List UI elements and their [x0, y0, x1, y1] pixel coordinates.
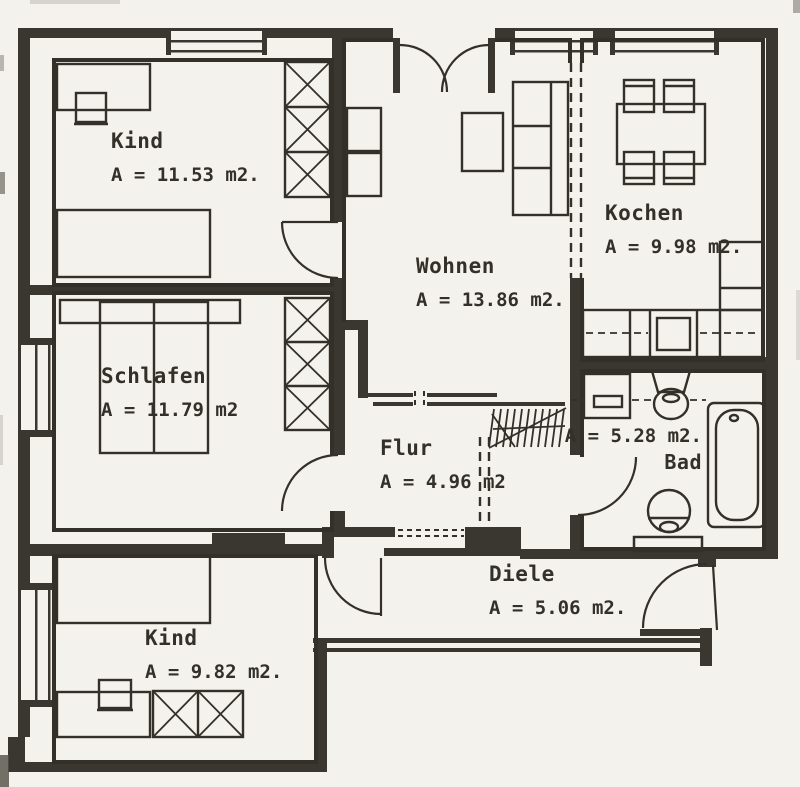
kind2-wardrobe: [153, 691, 243, 737]
floor-plan-page: Kind A = 11.53 m2. Wohnen A = 13.86 m2. …: [0, 0, 800, 787]
room-label-wohnen: Wohnen A = 13.86 m2.: [416, 256, 565, 310]
wohnen-sofa: [513, 82, 568, 215]
room-name: Kochen: [605, 203, 742, 224]
room-label-flur: Flur A = 4.96 m2: [380, 438, 506, 492]
door-kind1: [282, 222, 338, 278]
room-area: A = 9.82 m2.: [145, 663, 282, 682]
door-kind2-diele: [325, 558, 381, 616]
room-name: Kind: [111, 131, 260, 152]
room-outline-kochen: [582, 40, 763, 360]
room-name: Kind: [145, 628, 282, 649]
room-label-diele: Diele A = 5.06 m2.: [489, 564, 626, 618]
entrance-door: [643, 564, 717, 630]
room-name: Bad: [552, 452, 702, 472]
window-schlafen: [18, 338, 52, 437]
kind2-bed: [57, 556, 210, 623]
room-area: A = 11.53 m2.: [111, 166, 260, 185]
window-kind2: [18, 583, 52, 707]
balcony-door-jamb: [488, 38, 495, 93]
room-outline-wohnen-left: [344, 40, 393, 322]
room-name: Flur: [380, 438, 506, 459]
room-area: A = 5.28 m2.: [552, 427, 702, 446]
room-area: A = 4.96 m2: [380, 473, 506, 492]
balcony-door-jamb: [393, 38, 400, 93]
kind1-bed: [57, 210, 210, 277]
room-label-kind-2: Kind A = 9.82 m2.: [145, 628, 282, 682]
bad-bathtub: [708, 403, 765, 527]
window-kind1: [166, 28, 267, 55]
kind1-wardrobe: [285, 62, 330, 197]
room-label-schlafen: Schlafen A = 11.79 m2: [101, 366, 238, 420]
kochen-counter: [583, 310, 763, 357]
room-name: Diele: [489, 564, 626, 585]
room-name: Schlafen: [101, 366, 238, 387]
wohnen-armchair: [347, 108, 381, 151]
door-schlafen: [282, 455, 338, 511]
room-area: A = 11.79 m2: [101, 401, 238, 420]
room-label-kind-1: Kind A = 11.53 m2.: [111, 131, 260, 185]
kind1-desk: [57, 64, 150, 124]
room-label-kochen: Kochen A = 9.98 m2.: [605, 203, 742, 257]
wohnen-coffee-table: [462, 113, 503, 171]
bad-sink: [648, 490, 690, 532]
room-area: A = 13.86 m2.: [416, 291, 565, 310]
bad-toilet: [632, 371, 706, 419]
schlafen-wardrobe: [285, 298, 330, 430]
wohnen-armchair: [347, 153, 381, 196]
kind2-desk: [57, 680, 150, 737]
kochen-chairs: [624, 80, 694, 184]
room-name: Wohnen: [416, 256, 565, 277]
room-label-bad: A = 5.28 m2. Bad: [552, 427, 702, 472]
balcony-double-door: [400, 45, 489, 92]
room-area: A = 5.06 m2.: [489, 599, 626, 618]
room-area: A = 9.98 m2.: [605, 238, 742, 257]
